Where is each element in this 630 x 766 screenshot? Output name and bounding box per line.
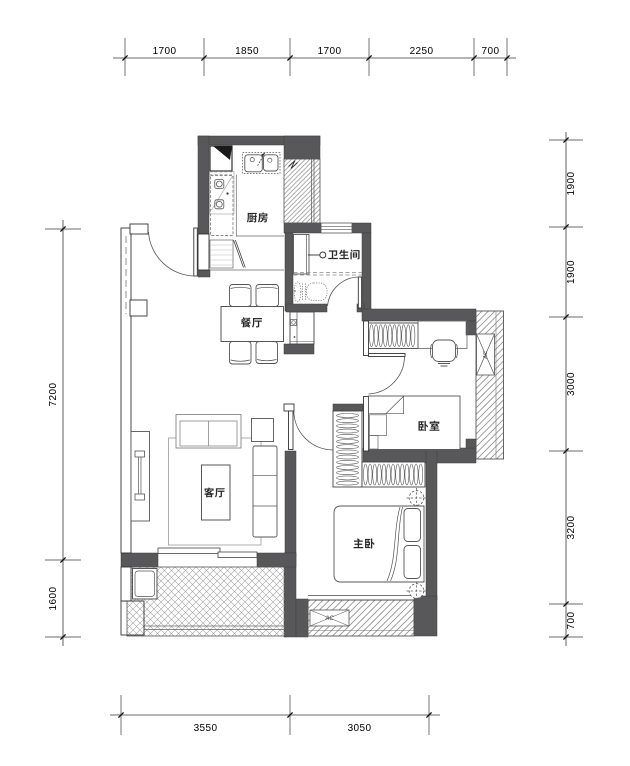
- svg-text:1700: 1700: [153, 46, 177, 57]
- svg-text:700: 700: [482, 46, 500, 57]
- svg-text:1600: 1600: [48, 587, 59, 611]
- svg-text:3000: 3000: [566, 372, 577, 396]
- svg-text:AC: AC: [324, 616, 334, 622]
- svg-text:AC: AC: [483, 351, 489, 360]
- svg-text:3050: 3050: [348, 723, 372, 734]
- svg-text:2250: 2250: [410, 46, 434, 57]
- svg-text:7200: 7200: [48, 383, 59, 407]
- svg-text:700: 700: [566, 612, 577, 630]
- svg-text:1900: 1900: [566, 172, 577, 196]
- svg-text:1700: 1700: [318, 46, 342, 57]
- svg-text:1900: 1900: [566, 260, 577, 284]
- svg-text:1850: 1850: [235, 46, 259, 57]
- svg-text:3550: 3550: [194, 723, 218, 734]
- svg-text:3200: 3200: [566, 516, 577, 540]
